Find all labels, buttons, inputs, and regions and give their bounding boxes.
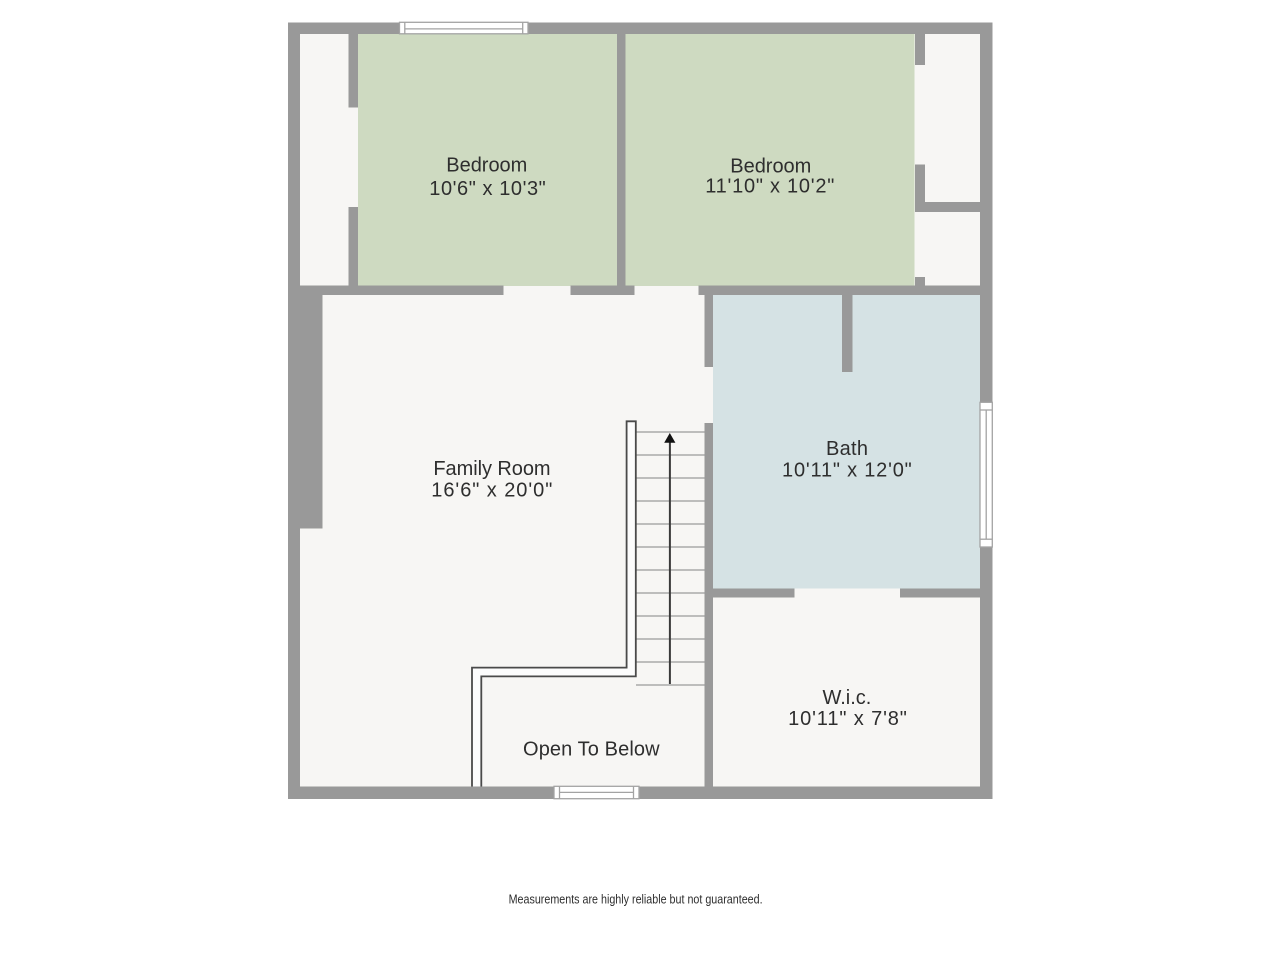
svg-text:Measurements are highly reliab: Measurements are highly reliable but not… [509,893,763,907]
svg-text:Bedroom: Bedroom [730,155,811,177]
svg-text:W.i.c.: W.i.c. [823,687,872,709]
svg-text:16'6" x 20'0": 16'6" x 20'0" [431,479,552,501]
svg-text:Bedroom: Bedroom [446,154,527,176]
svg-text:10'6" x 10'3": 10'6" x 10'3" [429,178,546,200]
svg-text:11'10" x 10'2": 11'10" x 10'2" [705,176,834,198]
svg-text:10'11" x 12'0": 10'11" x 12'0" [782,460,912,482]
svg-text:Bath: Bath [826,438,868,460]
svg-text:Family Room: Family Room [433,458,550,480]
svg-text:10'11" x 7'8": 10'11" x 7'8" [788,708,907,730]
svg-text:Open To Below: Open To Below [523,738,660,760]
